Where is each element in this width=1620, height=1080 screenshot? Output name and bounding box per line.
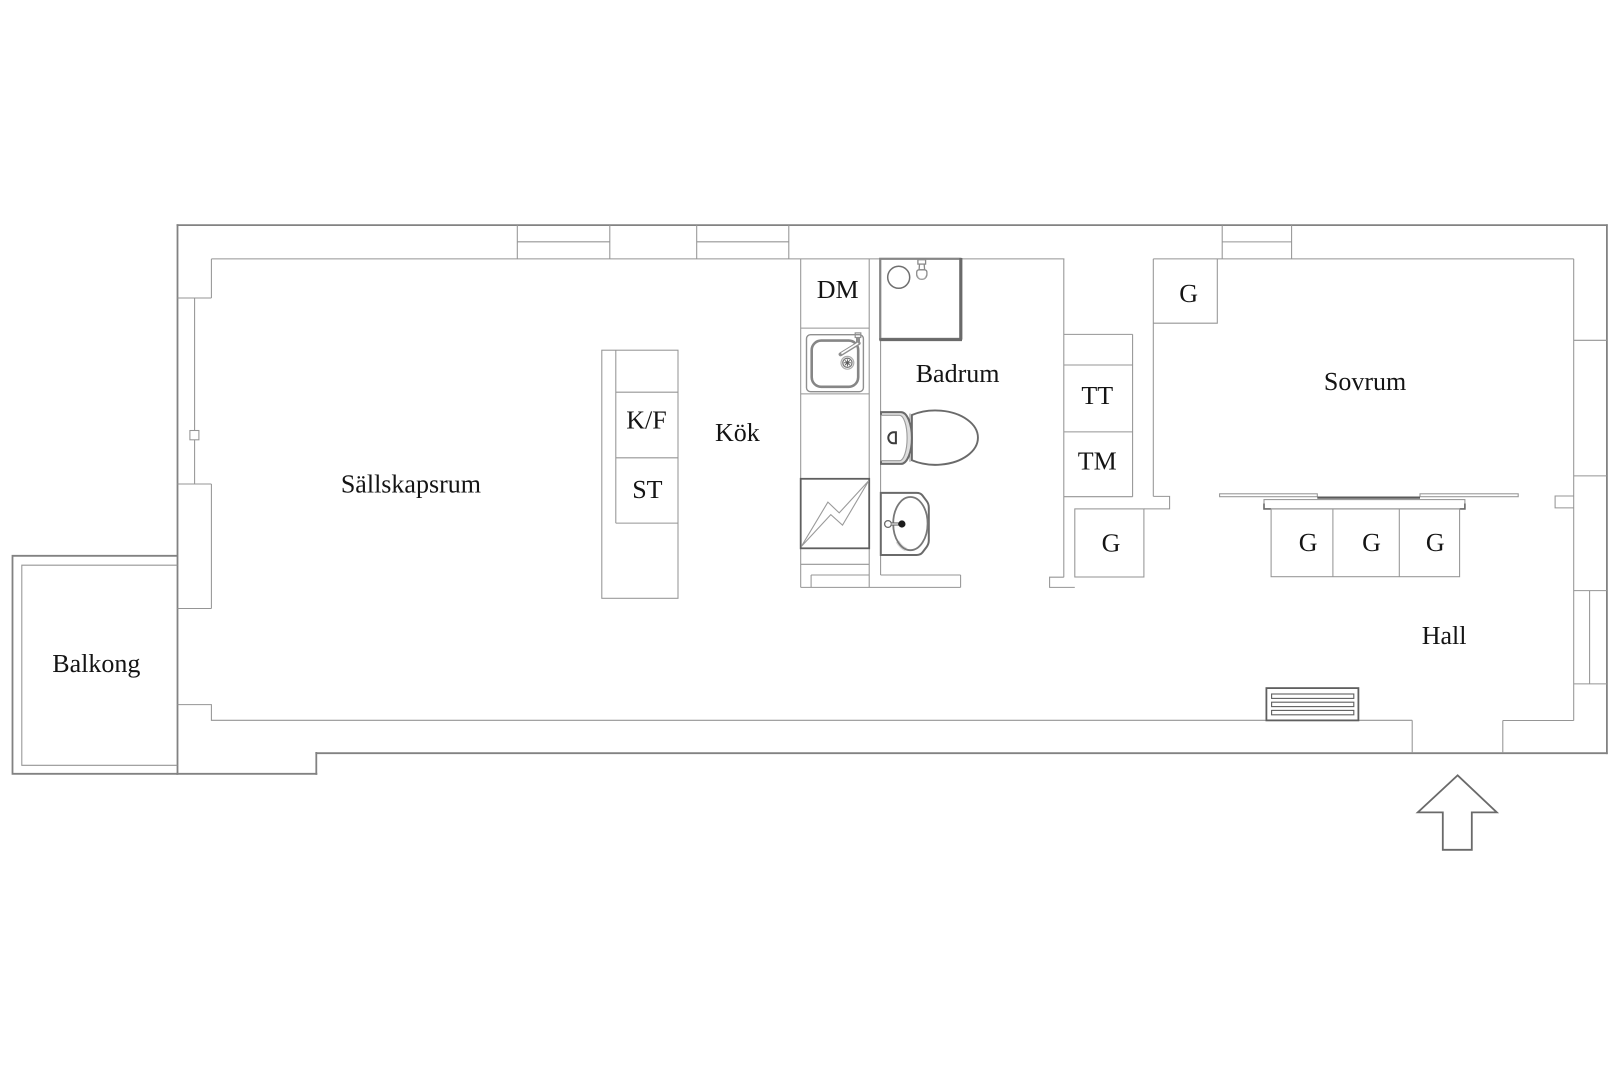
svg-text:G: G [1362,528,1381,557]
svg-text:Balkong: Balkong [52,649,140,678]
svg-text:TT: TT [1081,381,1113,410]
svg-text:ST: ST [632,475,662,504]
svg-text:Badrum: Badrum [916,359,1000,388]
svg-text:DM: DM [817,275,859,304]
svg-text:Kök: Kök [715,418,760,447]
svg-text:G: G [1179,279,1198,308]
svg-text:G: G [1102,529,1121,558]
svg-text:G: G [1299,528,1318,557]
svg-text:TM: TM [1078,446,1117,475]
svg-text:Sällskapsrum: Sällskapsrum [341,469,481,498]
svg-text:G: G [1426,528,1445,557]
svg-text:K/F: K/F [626,406,666,435]
svg-text:Sovrum: Sovrum [1324,367,1406,396]
svg-text:Hall: Hall [1422,621,1467,650]
